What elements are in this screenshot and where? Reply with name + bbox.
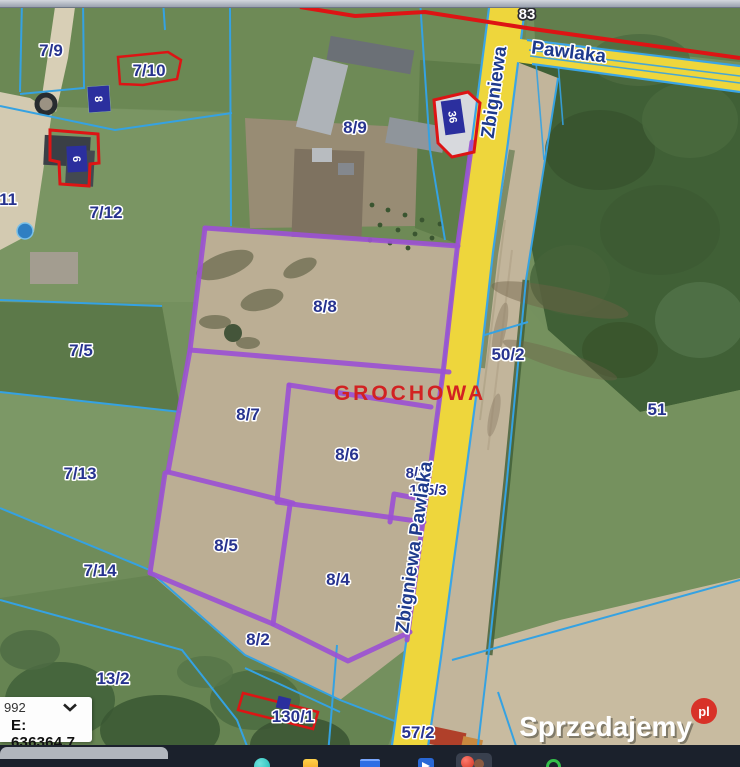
parcel-label-8-4: 8/4	[326, 570, 350, 589]
taskbar-icon-teal-app[interactable]	[254, 758, 270, 767]
parcel-label-7-11: 7/11	[0, 190, 17, 209]
parcel-label-8-5: 8/5	[214, 536, 238, 555]
parcel-label-8-8: 8/8	[313, 297, 337, 316]
taskbar	[0, 745, 740, 767]
coordinates-panel: 992 E: 636364.7	[0, 697, 92, 742]
road-number-badge: 83	[519, 6, 536, 23]
place-label-grochowa: GROCHOWA	[334, 382, 486, 405]
parcel-label-7-5: 7/5	[69, 341, 93, 360]
taskbar-icon-active-app[interactable]	[456, 753, 492, 767]
parcel-label-7-13: 7/13	[63, 464, 96, 483]
parcel-label-7-14: 7/14	[83, 561, 117, 580]
watermark-brand: Sprzedajemy	[519, 711, 692, 742]
background-window-edge[interactable]	[0, 747, 168, 759]
scale-dropdown-chevron-icon[interactable]	[62, 703, 78, 712]
parcel-label-51: 51	[648, 400, 667, 419]
parcel-label-50-2: 50/2	[491, 345, 524, 364]
watermark-pl-text: pl	[698, 704, 710, 719]
parcel-label-130-1: 130/1	[272, 707, 315, 726]
taskbar-icon-green-app[interactable]	[546, 759, 561, 767]
taskbar-icon-blue-app[interactable]	[360, 759, 380, 767]
scale-value: 992	[4, 700, 26, 715]
parcel-label-7-9: 7/9	[39, 41, 63, 60]
aerial-map-canvas[interactable]: 8 6 36 7/9 7/10 7/11 7/12 7/5 7/13 7/14 …	[0, 0, 740, 767]
taskbar-icon-arrow-app[interactable]	[418, 758, 434, 767]
building-number-8: 8	[92, 96, 104, 103]
pool	[17, 223, 33, 239]
taskbar-icon-orange-app[interactable]	[303, 759, 318, 767]
parcel-label-8-9: 8/9	[343, 118, 367, 137]
building-number-6: 6	[70, 156, 82, 163]
parcel-label-8-2: 8/2	[246, 630, 270, 649]
window-chrome-top	[0, 0, 740, 8]
parcel-label-8-7: 8/7	[236, 405, 260, 424]
parcel-label-13-2: 13/2	[96, 669, 129, 688]
parcel-label-7-10: 7/10	[132, 61, 165, 80]
parcel-label-8-6: 8/6	[335, 445, 359, 464]
building-number-36: 36	[445, 110, 459, 124]
parcel-label-57-2: 57/2	[401, 723, 434, 742]
screenshot-root: 8 6 36 7/9 7/10 7/11 7/12 7/5 7/13 7/14 …	[0, 0, 740, 767]
parcel-label-7-12: 7/12	[89, 203, 122, 222]
